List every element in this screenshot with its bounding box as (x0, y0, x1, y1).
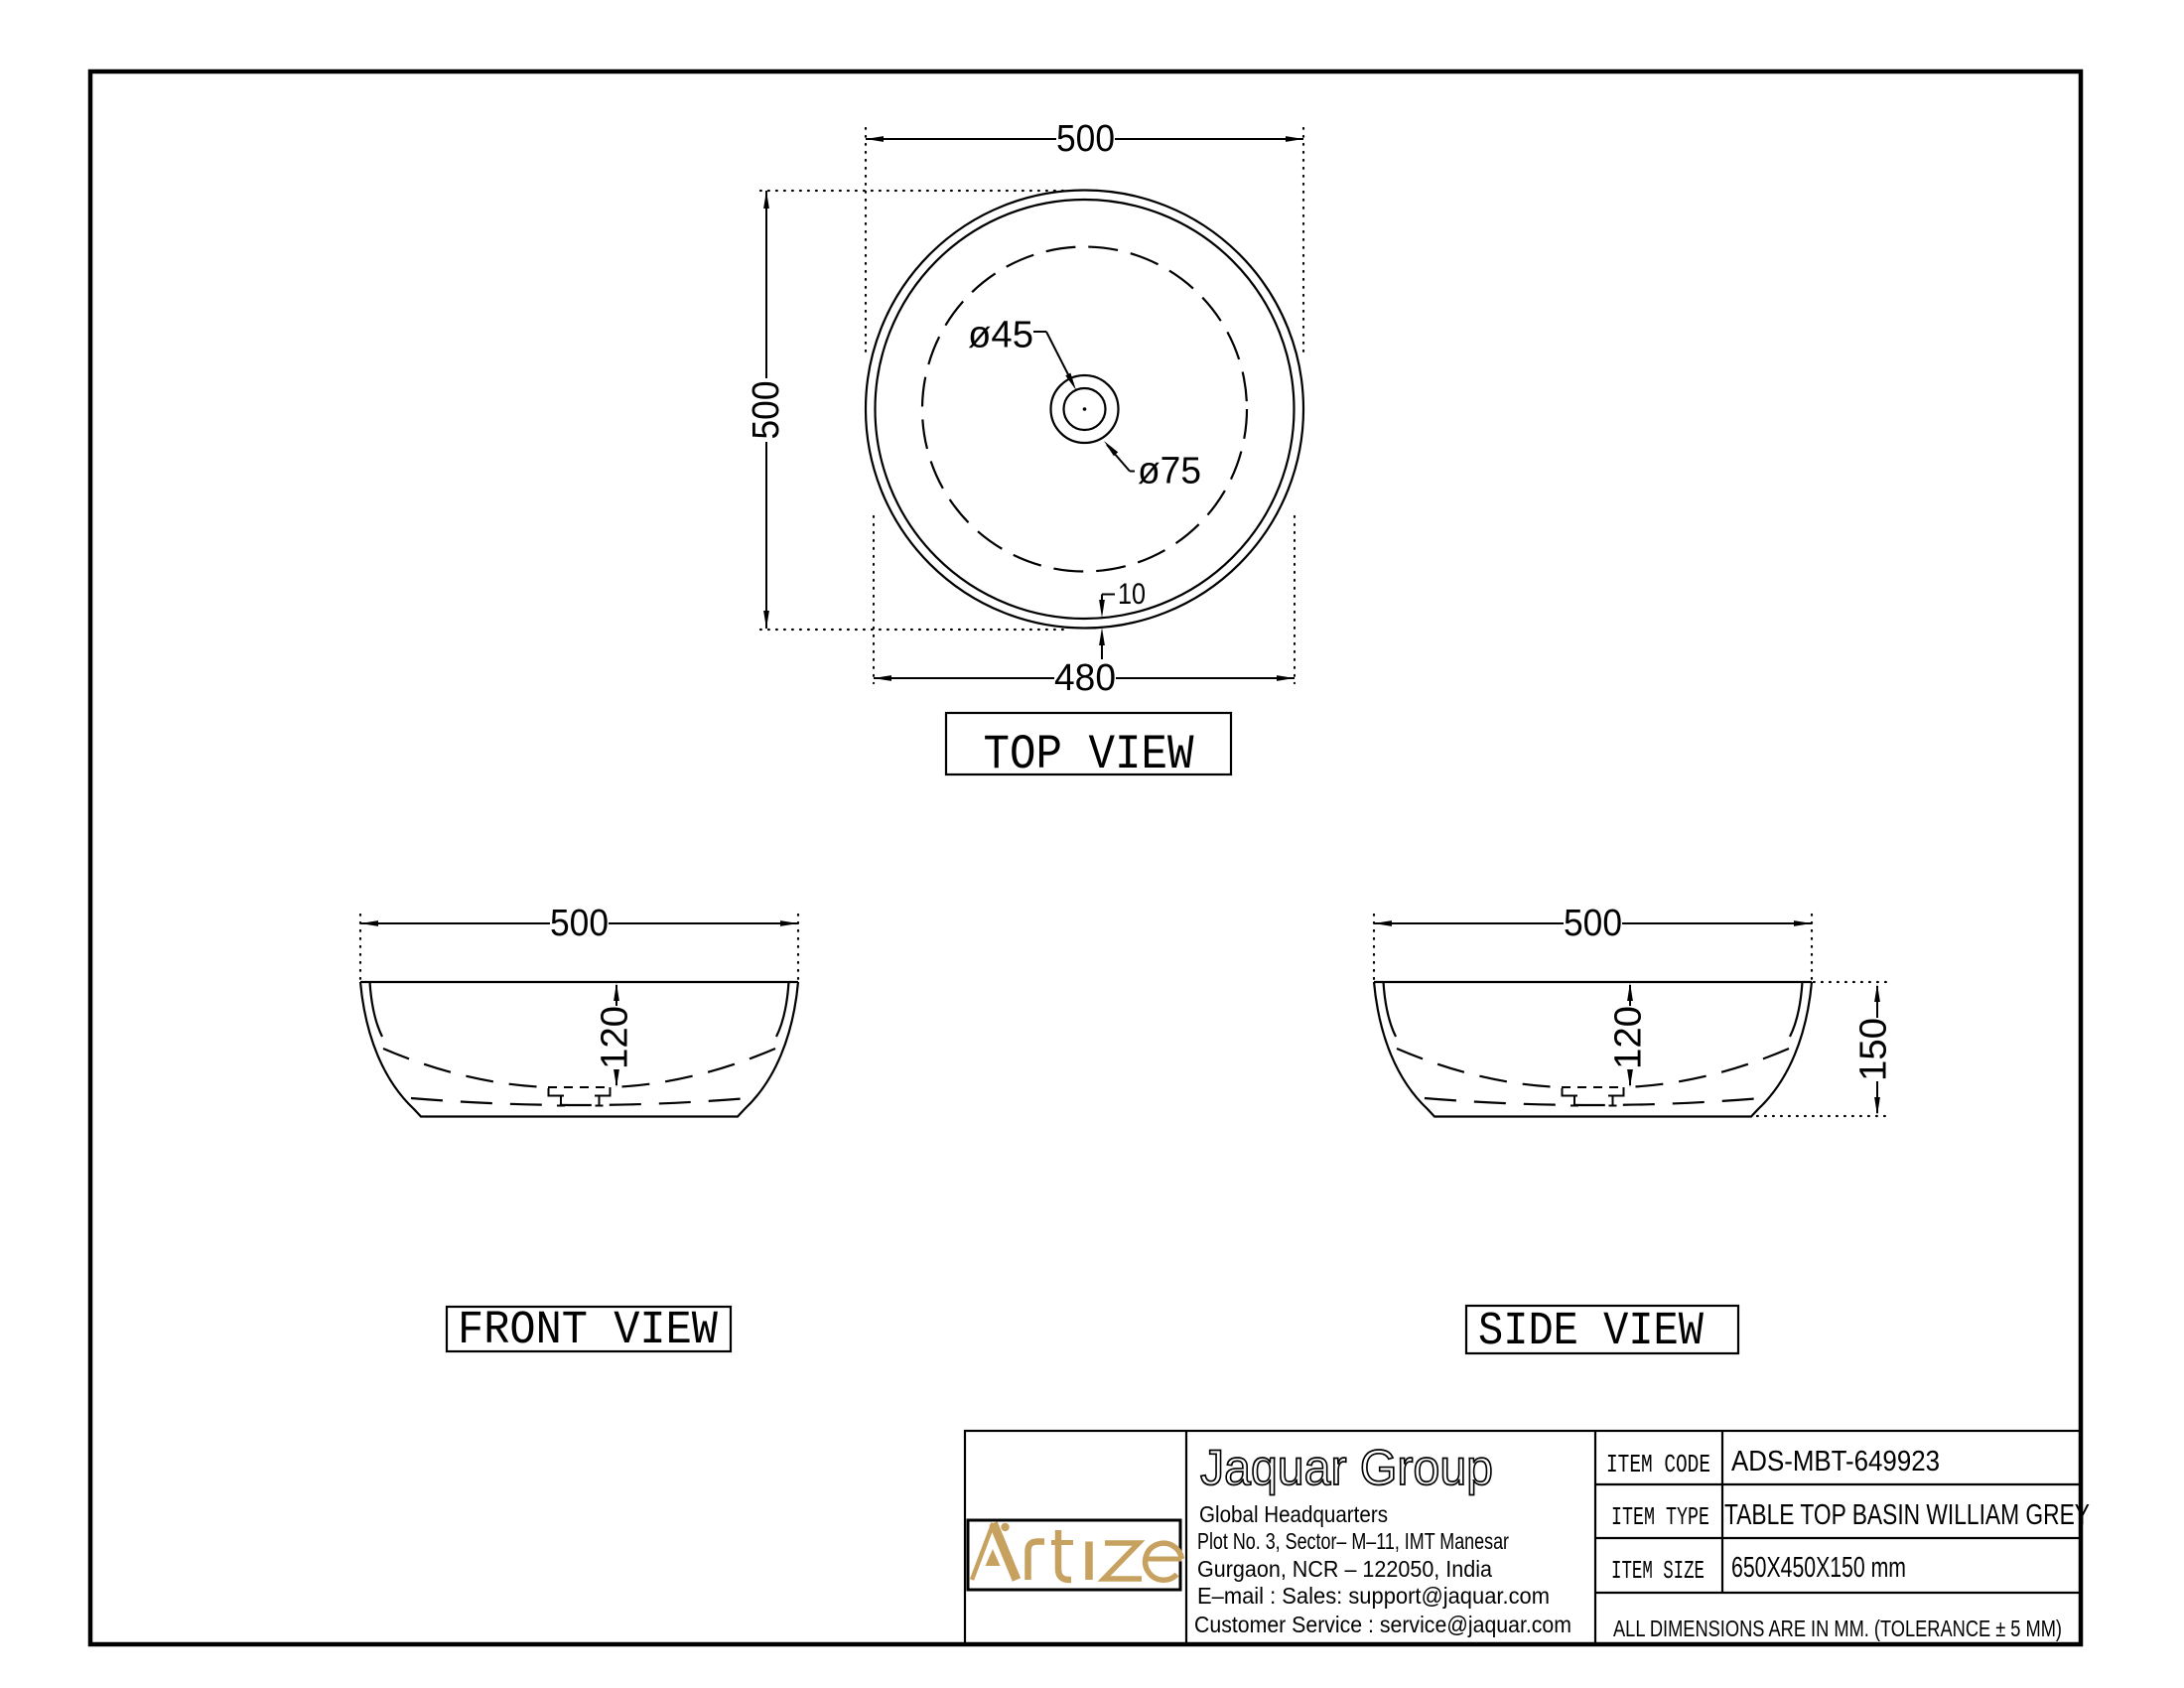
svg-text:500: 500 (1056, 118, 1115, 160)
svg-text:Customer Service : service@jaq: Customer Service : service@jaquar.com (1194, 1612, 1571, 1637)
svg-text:ø45: ø45 (968, 315, 1033, 356)
svg-text:120: 120 (595, 1006, 636, 1069)
svg-text:E–mail : Sales: support@jaquar: E–mail : Sales: support@jaquar.com (1197, 1583, 1550, 1609)
svg-text:ø75: ø75 (1138, 451, 1201, 492)
svg-text:Jaquar Group: Jaquar Group (1200, 1440, 1493, 1495)
svg-text:500: 500 (550, 903, 609, 944)
svg-text:ITEM SIZE: ITEM SIZE (1611, 1556, 1705, 1586)
svg-text:500: 500 (746, 381, 787, 440)
svg-text:ADS-MBT-649923: ADS-MBT-649923 (1731, 1446, 1940, 1477)
svg-text:Global Headquarters: Global Headquarters (1199, 1501, 1388, 1527)
svg-text:ALL DIMENSIONS ARE IN MM. (TOL: ALL DIMENSIONS ARE IN MM. (TOLERANCE ± 5… (1613, 1616, 2062, 1641)
svg-text:SIDE VIEW: SIDE VIEW (1478, 1306, 1705, 1358)
svg-text:TOP VIEW: TOP VIEW (984, 727, 1195, 782)
svg-text:10: 10 (1118, 578, 1146, 611)
svg-text:TABLE TOP BASIN WILLIAM GREY: TABLE TOP BASIN WILLIAM GREY (1724, 1499, 2090, 1531)
svg-text:ITEM TYPE: ITEM TYPE (1611, 1502, 1709, 1532)
svg-text:500: 500 (1564, 903, 1622, 944)
svg-text:FRONT VIEW: FRONT VIEW (458, 1305, 719, 1357)
svg-text:Gurgaon, NCR – 122050, India: Gurgaon, NCR – 122050, India (1197, 1556, 1493, 1582)
svg-text:480: 480 (1054, 657, 1116, 699)
svg-text:Plot No. 3, Sector– M–11, IMT: Plot No. 3, Sector– M–11, IMT Manesar (1197, 1528, 1509, 1554)
svg-text:120: 120 (1608, 1006, 1650, 1069)
svg-text:650X450X150 mm: 650X450X150 mm (1731, 1552, 1906, 1584)
svg-text:ITEM CODE: ITEM CODE (1606, 1450, 1710, 1479)
svg-text:150: 150 (1853, 1018, 1895, 1081)
